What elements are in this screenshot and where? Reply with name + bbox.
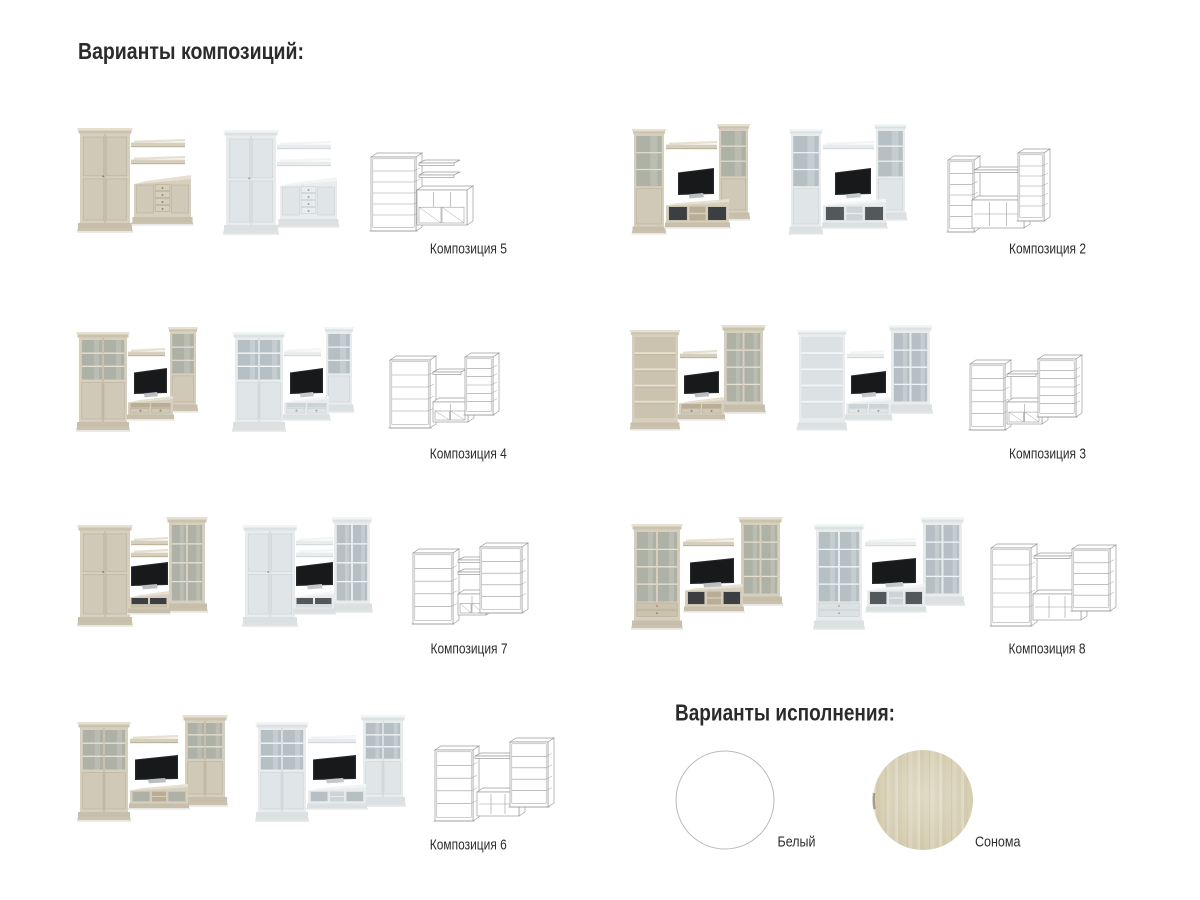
svg-text:Варианты исполнения:: Варианты исполнения: <box>675 700 895 726</box>
svg-text:Варианты композиций:: Варианты композиций: <box>78 38 304 64</box>
svg-text:Композиция 4: Композиция 4 <box>430 446 507 463</box>
svg-text:Композиция 7: Композиция 7 <box>431 641 508 658</box>
svg-text:Композиция 2: Композиция 2 <box>1009 241 1086 258</box>
svg-text:Композиция 5: Композиция 5 <box>430 241 507 258</box>
svg-text:Композиция 3: Композиция 3 <box>1009 446 1086 463</box>
svg-text:Композиция 8: Композиция 8 <box>1009 641 1086 658</box>
svg-text:Композиция 6: Композиция 6 <box>430 837 507 854</box>
svg-text:Белый: Белый <box>778 834 816 851</box>
svg-text:Сонома: Сонома <box>975 834 1021 851</box>
